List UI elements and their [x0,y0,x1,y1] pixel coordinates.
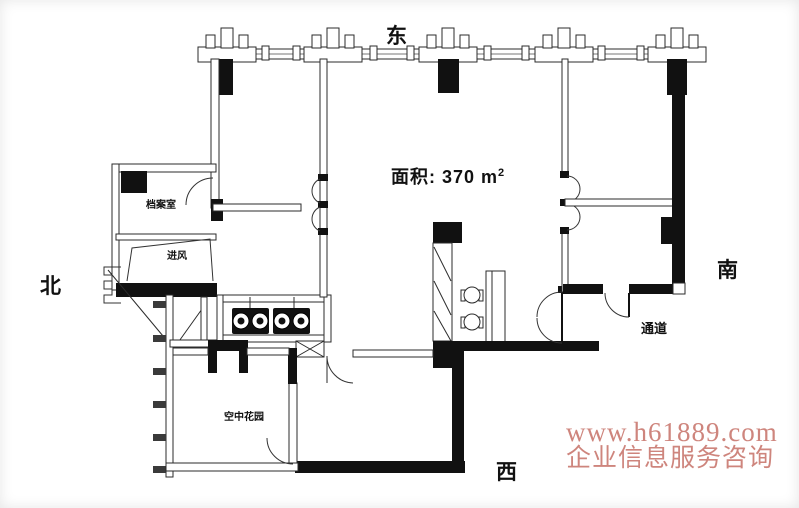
air-inlet-duct [104,239,217,344]
compass-south: 南 [717,254,739,284]
compass-east: 东 [386,20,408,50]
area-label: 面积: 370 m2 [391,163,505,189]
interior-wall-east [560,59,675,292]
floor-plan-page: 东 北 南 西 面积: 370 m2 档案室 进风 空中花园 通道 www.h6… [0,0,799,508]
flue-column [208,340,248,373]
watermark-url: www.h61889.com [566,418,778,446]
compass-north: 北 [40,270,62,300]
area-superscript: 2 [498,167,505,179]
west-lower-wall [153,295,217,477]
room-label-sky-garden: 空中花园 [224,408,264,423]
south-east-wall [563,59,685,317]
room-label-corridor: 通道 [641,318,667,337]
watermark-text: 企业信息服务咨询 [566,446,778,472]
watermark: www.h61889.com 企业信息服务咨询 [566,418,778,472]
hall-double-door [537,286,568,343]
archive-room-walls [112,164,216,290]
reception-desk [486,271,505,343]
room-label-archive: 档案室 [146,196,176,211]
area-text: 面积: 370 m [391,167,498,187]
shaft-cross-box [296,341,324,357]
kitchen-stove [217,295,331,342]
compass-west: 西 [496,456,518,486]
desk-chairs [461,287,483,330]
service-shaft-hatch [433,222,462,341]
room-label-air-inlet: 进风 [167,247,187,262]
east-wall [198,28,706,95]
